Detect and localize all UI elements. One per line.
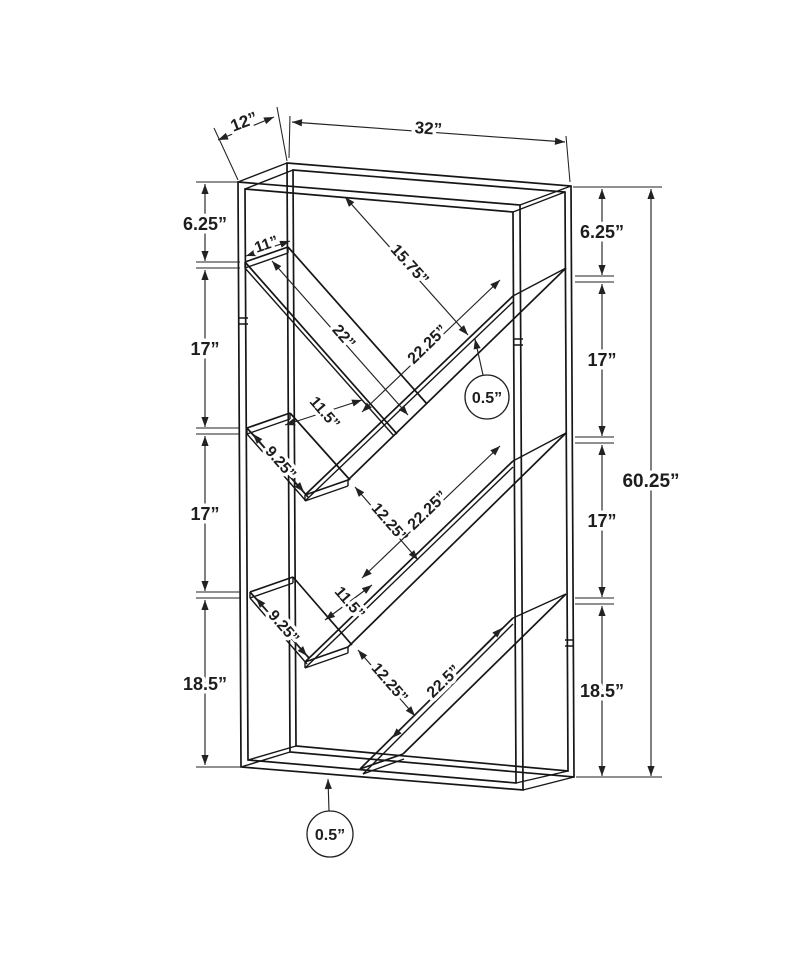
dim-label-right-2: 17”: [587, 350, 616, 370]
dim-label-11-5-a: 11.5”: [306, 393, 343, 432]
dimension-shelf-end-width: 11”: [246, 233, 290, 257]
dim-label-0-5-middle: 0.5”: [472, 390, 502, 407]
dim-label-22-25-a: 22.25”: [405, 322, 451, 368]
dim-label-11-5-b: 11.5”: [331, 583, 368, 622]
dim-label-left-2: 17”: [190, 339, 219, 359]
dim-label-9-25-b: 9.25”: [265, 607, 303, 647]
dim-label-right-1: 6.25”: [580, 222, 624, 242]
dimension-stack-left: 6.25” 17” 17” 18.5”: [183, 182, 243, 767]
dim-label-height: 60.25”: [622, 471, 679, 492]
stringer-board-1: [305, 268, 566, 501]
dim-label-22-5: 22.5”: [424, 662, 464, 701]
dim-label-left-3: 17”: [190, 504, 219, 524]
dimension-short-shelf-1: 9.25”: [253, 434, 304, 492]
left-shelf-top: [245, 247, 427, 436]
dim-label-left-4: 18.5”: [183, 674, 227, 694]
dimension-width: 32”: [289, 116, 570, 182]
bookcase-dimension-drawing: 12” 32” 6.25” 17” 17” 18.5” 6.25” 17”: [0, 0, 800, 971]
dim-label-15-75: 15.75”: [387, 241, 432, 288]
dimension-overall-height: 60.25”: [622, 189, 679, 776]
dimension-gap-right-2: 12.25”: [358, 650, 415, 716]
dimension-top-opening: 15.75”: [345, 197, 468, 335]
dim-label-right-3: 17”: [587, 511, 616, 531]
dim-label-right-4: 18.5”: [580, 681, 624, 701]
diagram-canvas: 12” 32” 6.25” 17” 17” 18.5” 6.25” 17”: [0, 0, 800, 971]
dimension-short-shelf-2: 9.25”: [256, 598, 307, 656]
dimension-top-shelf-length: 22”: [272, 261, 408, 415]
thickness-callout-middle: 0.5”: [465, 339, 509, 419]
dim-label-depth: 12”: [228, 108, 260, 136]
dimension-gap-left-1: 11.5”: [285, 393, 362, 432]
dimension-stringer-3: 22.5”: [392, 628, 502, 738]
frame-front-hoop: [238, 182, 523, 790]
dim-label-22: 22”: [329, 322, 359, 353]
thickness-callout-bottom: 0.5”: [307, 779, 353, 857]
dim-label-9-25-a: 9.25”: [262, 443, 300, 483]
dim-label-12-25-a: 12.25”: [368, 500, 411, 546]
dim-label-12-25-b: 12.25”: [368, 660, 411, 706]
dimension-depth: 12”: [214, 107, 287, 180]
dim-label-0-5-bottom: 0.5”: [315, 827, 345, 844]
dim-label-left-1: 6.25”: [183, 214, 227, 234]
dim-label-width: 32”: [414, 118, 443, 139]
dim-label-11: 11”: [252, 233, 280, 257]
